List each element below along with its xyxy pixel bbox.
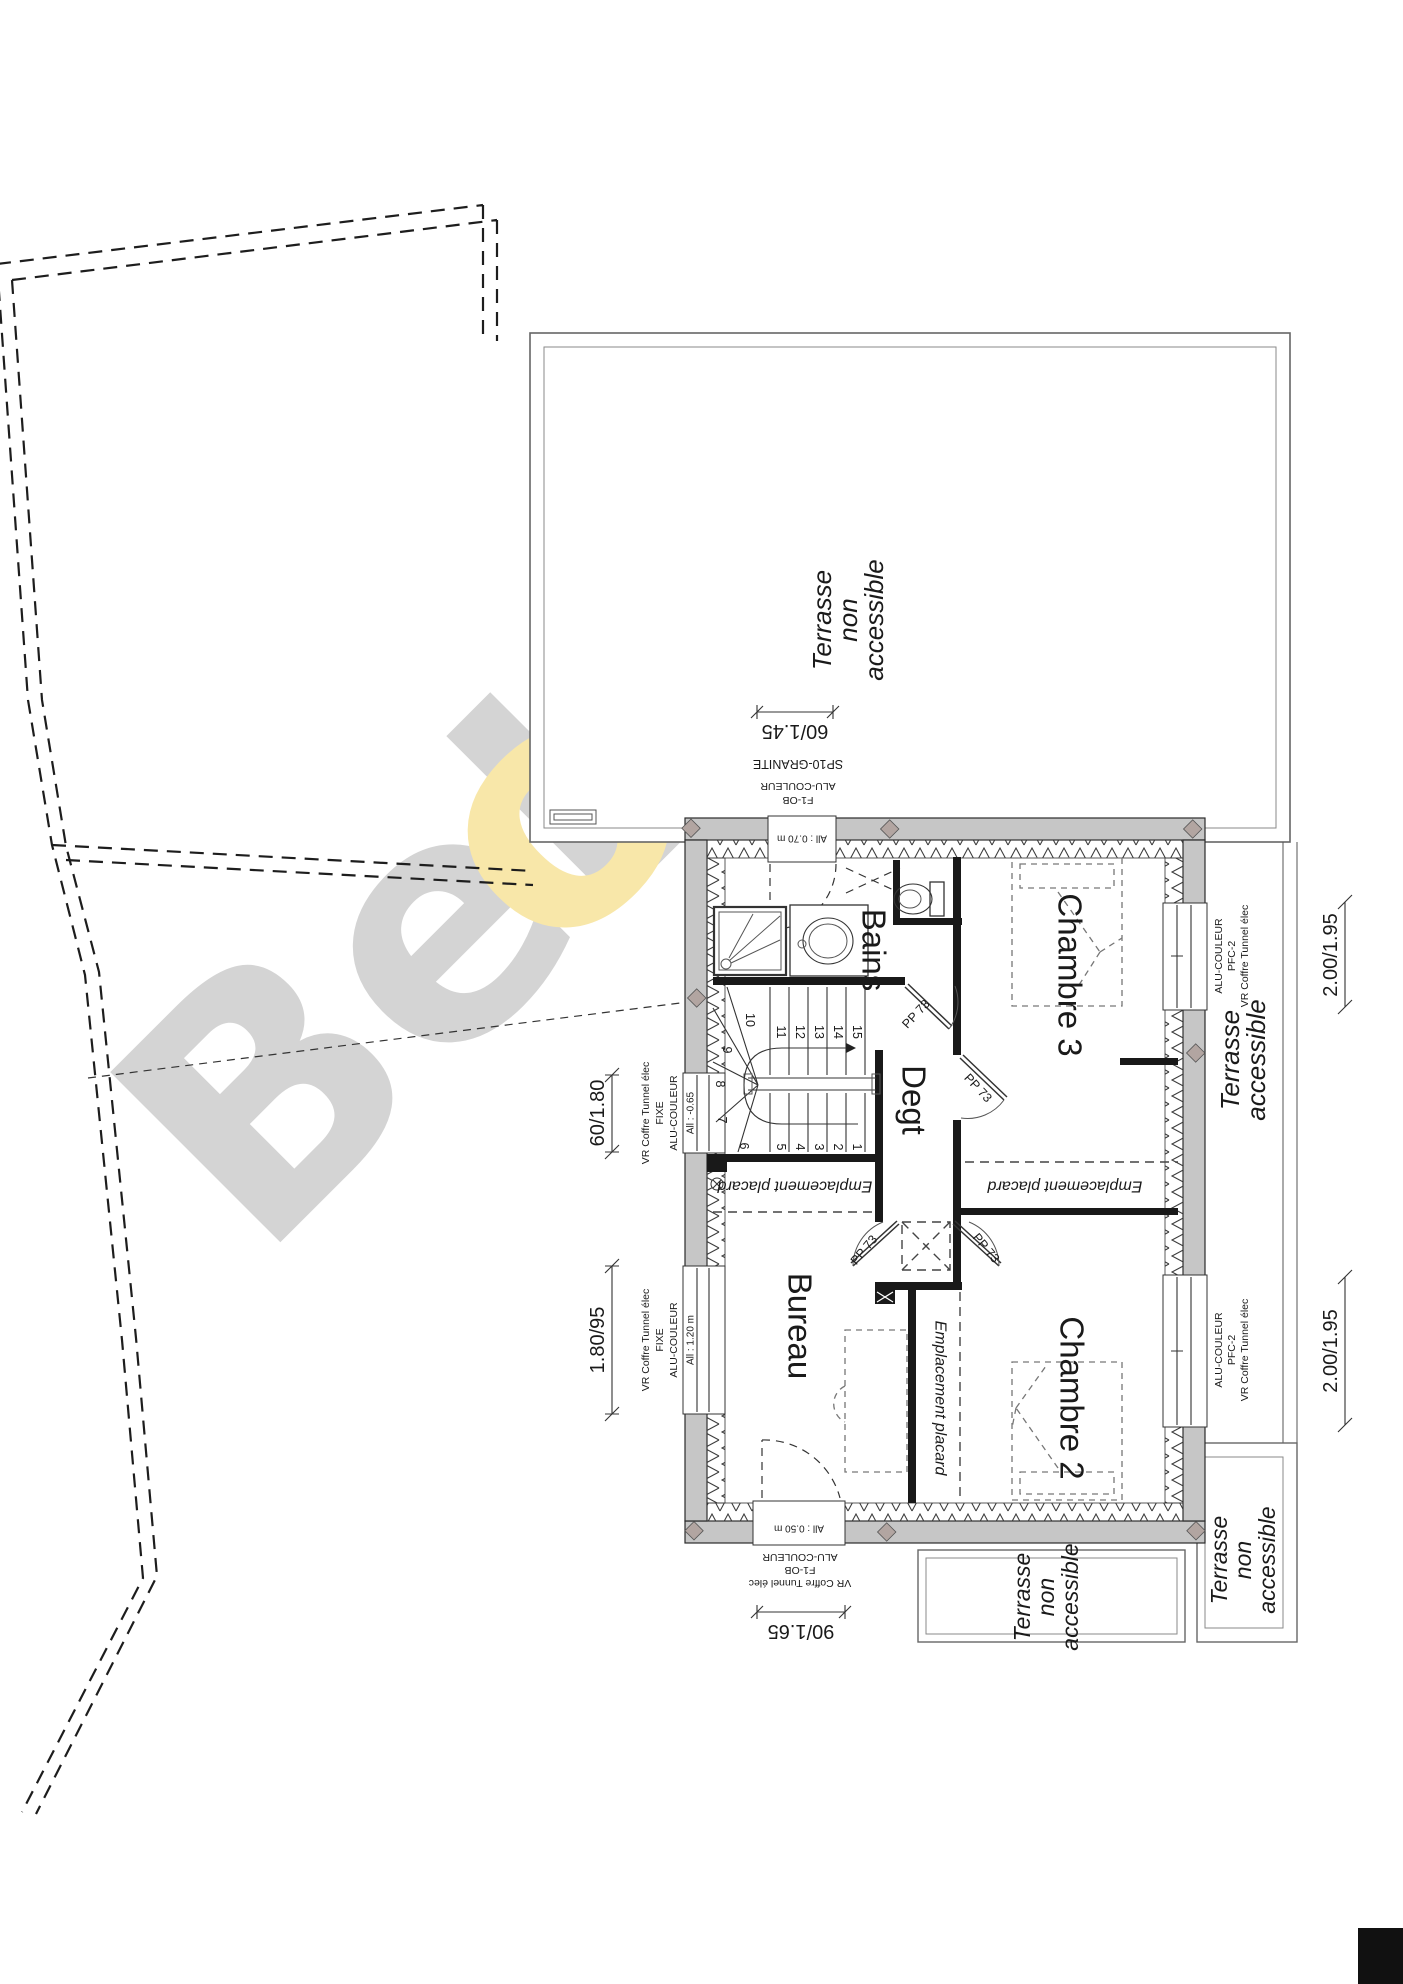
window-spec-left-lower: VR Coffre Tunnel élec FIXE ALU-COULEUR (640, 1289, 680, 1392)
svg-text:6: 6 (737, 1143, 751, 1150)
window-allowance-label: All : -0.65 (686, 1091, 697, 1134)
svg-text:12: 12 (793, 1025, 807, 1039)
svg-text:8: 8 (713, 1081, 727, 1088)
svg-text:ALU-COULEUR: ALU-COULEUR (762, 1551, 838, 1563)
room-label-chambre2: Chambre 2 (1054, 1316, 1091, 1479)
terrace-top-label: accessible (859, 559, 889, 680)
terrace-bottom-left: Terrasse non accessible (918, 1543, 1185, 1650)
floor-plan-page: BeL o N Terrasse non accessible 60/1.45 … (0, 0, 1403, 1984)
window-allowance-label: All : 1.20 m (686, 1315, 697, 1365)
svg-text:1.80/95: 1.80/95 (587, 1307, 609, 1374)
granite-spec-label: SP10-GRANITE (753, 757, 843, 771)
svg-text:ALU-COULEUR: ALU-COULEUR (668, 1302, 680, 1378)
svg-text:15: 15 (850, 1025, 864, 1039)
svg-text:9: 9 (720, 1047, 734, 1054)
svg-text:VR Coffre Tunnel élec: VR Coffre Tunnel élec (749, 1577, 852, 1589)
top-door-spec: F1-OB (783, 794, 814, 806)
placard-label: Emplacement placard (932, 1321, 949, 1477)
svg-text:1: 1 (850, 1144, 864, 1151)
svg-text:90/1.65: 90/1.65 (768, 1620, 835, 1642)
room-label-chambre3: Chambre 3 (1052, 893, 1089, 1056)
placard-label: Emplacement placard (717, 1178, 873, 1195)
dimension-left-upper: 60/1.80 (587, 1068, 619, 1159)
room-label-bains: Bains (856, 909, 893, 992)
svg-text:2.00/1.95: 2.00/1.95 (1320, 913, 1342, 996)
window-spec-east-upper: ALU-COULEUR PFC-2 VR Coffre Tunnel élec (1213, 905, 1251, 1008)
floor-plan-drawing: BeL o N Terrasse non accessible 60/1.45 … (0, 0, 1403, 1984)
top-door-spec: ALU-COULEUR (760, 780, 836, 792)
dimension-left-lower: 1.80/95 (587, 1259, 619, 1421)
placard-label: Emplacement placard (987, 1178, 1143, 1195)
terrace-top: Terrasse non accessible 60/1.45 SP10-GRA… (530, 333, 1290, 842)
room-label-degt: Degt (896, 1065, 933, 1135)
svg-text:ALU-COULEUR: ALU-COULEUR (1213, 1312, 1225, 1388)
window-east-upper (1163, 903, 1207, 1010)
page-corner-mark (1358, 1928, 1403, 1984)
door-spec-bottom: ALU-COULEUR F1-OB VR Coffre Tunnel élec (749, 1551, 852, 1589)
svg-text:VR Coffre Tunnel élec: VR Coffre Tunnel élec (1239, 1299, 1251, 1402)
window-spec-left-upper: VR Coffre Tunnel élec FIXE ALU-COULEUR (640, 1062, 680, 1165)
terrace-bottom-right-label: non (1230, 1541, 1256, 1579)
svg-text:7: 7 (715, 1117, 729, 1124)
dimension-east-upper: 2.00/1.95 (1320, 895, 1352, 1014)
door-allowance-label: All : 0.50 m (774, 1523, 824, 1534)
svg-text:10: 10 (743, 1013, 757, 1027)
terrace-bottom-left-label: Terrasse (1009, 1553, 1035, 1642)
door-allowance-label: All : 0.70 m (777, 833, 827, 844)
svg-text:13: 13 (812, 1025, 826, 1039)
terrace-east-label: accessible (1241, 999, 1271, 1120)
svg-text:ALU-COULEUR: ALU-COULEUR (1213, 918, 1225, 994)
svg-text:3: 3 (812, 1144, 826, 1151)
wc-partition (893, 918, 962, 925)
svg-text:VR Coffre Tunnel élec: VR Coffre Tunnel élec (640, 1289, 652, 1392)
svg-text:F1-OB: F1-OB (785, 1564, 816, 1576)
svg-text:PFC-2: PFC-2 (1226, 941, 1238, 971)
svg-text:60/1.80: 60/1.80 (587, 1080, 609, 1147)
svg-text:VR Coffre Tunnel élec: VR Coffre Tunnel élec (640, 1062, 652, 1165)
svg-text:PFC-2: PFC-2 (1226, 1335, 1238, 1365)
terrace-bottom-right: Terrasse non accessible (1197, 1443, 1297, 1642)
dimension-bottom: 90/1.65 (751, 1605, 851, 1642)
svg-text:11: 11 (774, 1026, 788, 1039)
svg-text:FIXE: FIXE (654, 1101, 666, 1124)
window-left-lower: All : 1.20 m (683, 1266, 725, 1414)
terrace-bottom-right-label: Terrasse (1206, 1516, 1232, 1605)
terrace-bottom-left-label: non (1033, 1578, 1059, 1616)
window-spec-east-lower: ALU-COULEUR PFC-2 VR Coffre Tunnel élec (1213, 1299, 1251, 1402)
svg-text:60/1.45: 60/1.45 (762, 720, 829, 742)
terrace-bottom-left-label: accessible (1057, 1543, 1083, 1650)
window-east-lower (1163, 1275, 1207, 1427)
svg-text:2.00/1.95: 2.00/1.95 (1320, 1309, 1342, 1392)
dimension-east-lower: 2.00/1.95 (1320, 1270, 1352, 1432)
svg-text:14: 14 (831, 1025, 845, 1039)
shower (714, 907, 786, 975)
room-label-bureau: Bureau (782, 1273, 819, 1379)
svg-text:VR Coffre Tunnel élec: VR Coffre Tunnel élec (1239, 905, 1251, 1008)
svg-text:ALU-COULEUR: ALU-COULEUR (668, 1075, 680, 1151)
svg-text:FIXE: FIXE (654, 1328, 666, 1351)
svg-text:4: 4 (793, 1144, 807, 1151)
svg-text:2: 2 (831, 1144, 845, 1151)
house: All : 0.70 m All : -0.65 All : 1.20 m Al… (682, 816, 1207, 1545)
svg-text:5: 5 (774, 1144, 788, 1151)
terrace-bottom-right-label: accessible (1254, 1506, 1280, 1613)
